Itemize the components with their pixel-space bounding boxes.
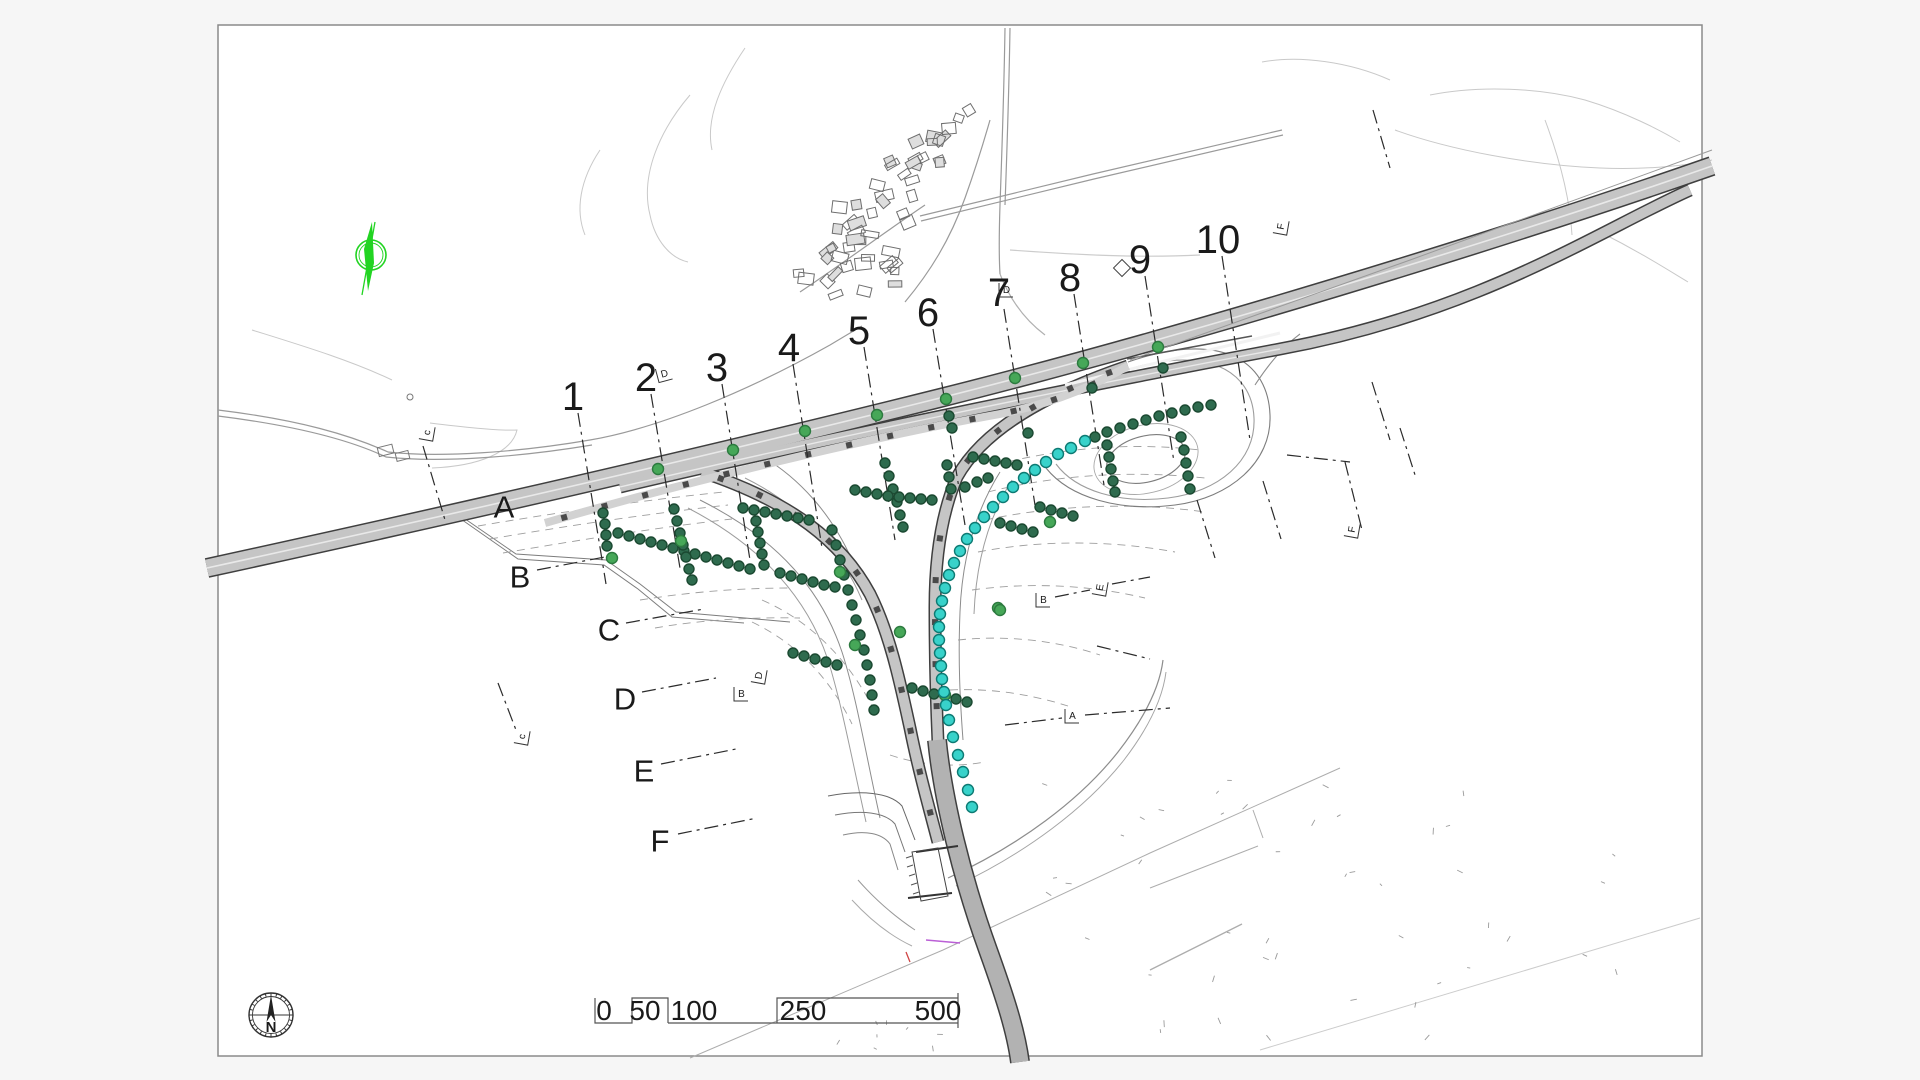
- tree-point-dark: [1181, 458, 1191, 468]
- tree-point-dark: [1128, 419, 1138, 429]
- tree-point-dark: [944, 472, 954, 482]
- scale-label-100: 100: [671, 995, 718, 1026]
- tree-point-dark: [947, 423, 957, 433]
- tree-point-dark: [1057, 508, 1067, 518]
- village-building: [846, 233, 865, 246]
- tree-point-green: [728, 445, 739, 456]
- tree-point-dark: [1115, 423, 1125, 433]
- tree-point-dark: [757, 549, 767, 559]
- tree-point-green: [653, 464, 664, 475]
- tree-point-dark: [797, 574, 807, 584]
- tree-point-dark: [749, 505, 759, 515]
- tree-point-green: [1045, 517, 1056, 528]
- scale-label-0: 0: [596, 995, 612, 1026]
- station-tick: [933, 577, 939, 583]
- tree-point-dark: [1141, 415, 1151, 425]
- tree-point-cyan: [970, 523, 981, 534]
- tree-point-dark: [995, 518, 1005, 528]
- tree-point-dark: [600, 519, 610, 529]
- tree-point-dark: [1206, 400, 1216, 410]
- tree-point-cyan: [948, 732, 959, 743]
- tree-point-dark: [1104, 452, 1114, 462]
- station-tick: [887, 432, 894, 439]
- tree-point-green: [941, 394, 952, 405]
- tree-point-dark: [951, 694, 961, 704]
- tree-point-dark: [1046, 505, 1056, 515]
- tree-point-cyan: [939, 687, 950, 698]
- grid-column-label: 4: [778, 326, 800, 370]
- tree-point-dark: [1183, 471, 1193, 481]
- tree-point-dark: [1185, 484, 1195, 494]
- north-compass-icon: N: [249, 993, 293, 1037]
- tree-point-dark: [1068, 511, 1078, 521]
- tree-point-dark: [751, 516, 761, 526]
- tree-point-cyan: [963, 785, 974, 796]
- grid-column-label: 5: [848, 309, 870, 353]
- tree-point-dark: [672, 516, 682, 526]
- tree-point-dark: [905, 493, 915, 503]
- tree-point-dark: [972, 477, 982, 487]
- tree-point-dark: [850, 485, 860, 495]
- tree-point-dark: [775, 568, 785, 578]
- tree-point-dark: [635, 534, 645, 544]
- tree-point-dark: [745, 564, 755, 574]
- tree-point-green: [607, 553, 618, 564]
- tree-point-cyan: [998, 492, 1009, 503]
- grid-column-label: 1: [562, 375, 584, 419]
- tree-point-dark: [983, 473, 993, 483]
- tree-point-dark: [821, 657, 831, 667]
- tree-point-dark: [1158, 363, 1168, 373]
- tree-point-dark: [771, 509, 781, 519]
- sheet-border: [218, 25, 1702, 1056]
- tree-point-dark: [624, 531, 634, 541]
- tree-point-green: [835, 567, 846, 578]
- tree-point-dark: [872, 489, 882, 499]
- tree-point-cyan: [1030, 465, 1041, 476]
- tree-point-cyan: [958, 767, 969, 778]
- tree-point-dark: [646, 537, 656, 547]
- tree-point-cyan: [936, 661, 947, 672]
- tree-point-dark: [880, 458, 890, 468]
- grid-row-label: F: [651, 824, 670, 859]
- tree-point-dark: [601, 530, 611, 540]
- tree-point-green: [872, 410, 883, 421]
- tree-point-cyan: [935, 648, 946, 659]
- section-flag-label: D: [1003, 285, 1010, 296]
- tree-point-dark: [851, 615, 861, 625]
- tree-point-dark: [613, 528, 623, 538]
- scale-label-50: 50: [629, 995, 660, 1026]
- tree-point-cyan: [962, 534, 973, 545]
- grid-row-label: A: [494, 490, 515, 525]
- tree-point-dark: [1087, 383, 1097, 393]
- tree-point-dark: [760, 507, 770, 517]
- tree-point-dark: [867, 690, 877, 700]
- tree-point-cyan: [1008, 482, 1019, 493]
- tree-point-cyan: [1019, 473, 1030, 484]
- tree-point-dark: [687, 575, 697, 585]
- tree-point-dark: [832, 660, 842, 670]
- tree-point-dark: [944, 411, 954, 421]
- grid-column-label: 8: [1059, 256, 1081, 300]
- tree-point-dark: [657, 540, 667, 550]
- tree-point-dark: [898, 522, 908, 532]
- tree-point-dark: [1028, 527, 1038, 537]
- tree-point-dark: [1154, 411, 1164, 421]
- tree-point-cyan: [1066, 443, 1077, 454]
- tree-point-dark: [1108, 476, 1118, 486]
- tree-point-dark: [862, 660, 872, 670]
- village-building: [888, 281, 902, 287]
- tree-point-cyan: [1080, 436, 1091, 447]
- tree-point-dark: [1001, 458, 1011, 468]
- tree-point-dark: [786, 571, 796, 581]
- grid-row-label: C: [598, 613, 620, 648]
- tree-point-dark: [1012, 460, 1022, 470]
- tree-point-dark: [782, 511, 792, 521]
- tree-point-dark: [990, 456, 1000, 466]
- tree-point-cyan: [944, 570, 955, 581]
- tree-point-dark: [684, 564, 694, 574]
- tree-point-dark: [865, 675, 875, 685]
- scale-label-500: 500: [915, 995, 962, 1026]
- tree-point-cyan: [979, 512, 990, 523]
- station-tick: [969, 416, 976, 423]
- tree-point-dark: [942, 460, 952, 470]
- tree-point-dark: [793, 513, 803, 523]
- tree-point-dark: [738, 503, 748, 513]
- tree-point-dark: [929, 689, 939, 699]
- tree-point-cyan: [988, 502, 999, 513]
- site-plan-page: 12345678910ABCDEF DccDBBEFAFD N 0 50 100…: [0, 0, 1920, 1080]
- tree-point-dark: [884, 471, 894, 481]
- tree-point-dark: [861, 487, 871, 497]
- compass-north-label: N: [266, 1019, 277, 1036]
- tree-point-dark: [810, 654, 820, 664]
- tree-point-dark: [946, 484, 956, 494]
- village-building: [935, 157, 944, 167]
- tree-point-dark: [755, 538, 765, 548]
- site-plan-drawing: 12345678910ABCDEF DccDBBEFAFD N 0 50 100…: [0, 0, 1920, 1080]
- tree-point-dark: [701, 552, 711, 562]
- tree-point-dark: [830, 582, 840, 592]
- section-flag-label: B: [1040, 595, 1047, 606]
- tree-point-dark: [960, 482, 970, 492]
- village-building: [851, 199, 862, 210]
- tree-point-dark: [723, 558, 733, 568]
- tree-point-cyan: [934, 622, 945, 633]
- tree-point-dark: [894, 492, 904, 502]
- tree-point-cyan: [941, 700, 952, 711]
- tree-point-dark: [804, 515, 814, 525]
- tree-point-cyan: [949, 558, 960, 569]
- tree-point-dark: [968, 452, 978, 462]
- tree-point-dark: [907, 683, 917, 693]
- tree-point-dark: [895, 510, 905, 520]
- tree-point-dark: [1180, 405, 1190, 415]
- scale-label-250: 250: [780, 995, 827, 1026]
- tree-point-green: [995, 605, 1006, 616]
- tree-point-green: [850, 640, 861, 651]
- tree-point-dark: [831, 540, 841, 550]
- tree-point-dark: [1023, 428, 1033, 438]
- tree-point-cyan: [1053, 449, 1064, 460]
- tree-point-dark: [819, 580, 829, 590]
- tree-point-dark: [759, 560, 769, 570]
- section-flag-label: B: [738, 689, 745, 700]
- tree-point-green: [1010, 373, 1021, 384]
- tree-point-dark: [855, 630, 865, 640]
- tree-point-dark: [1167, 408, 1177, 418]
- grid-column-label: 3: [706, 346, 728, 390]
- tree-point-dark: [847, 600, 857, 610]
- tree-point-dark: [1006, 521, 1016, 531]
- tree-point-dark: [918, 686, 928, 696]
- tree-point-dark: [598, 508, 608, 518]
- tree-point-dark: [1090, 432, 1100, 442]
- elevation-mark: [1066, 883, 1072, 884]
- grid-row-label: B: [510, 560, 531, 595]
- tree-point-dark: [1106, 464, 1116, 474]
- tree-point-dark: [1035, 502, 1045, 512]
- tree-point-cyan: [955, 546, 966, 557]
- section-flag-label: A: [1069, 711, 1076, 722]
- tree-point-dark: [1102, 440, 1112, 450]
- tree-point-green: [1153, 342, 1164, 353]
- tree-point-dark: [1110, 487, 1120, 497]
- tree-point-dark: [843, 585, 853, 595]
- tree-point-dark: [788, 648, 798, 658]
- tree-point-dark: [734, 561, 744, 571]
- tree-point-dark: [1176, 432, 1186, 442]
- tree-point-dark: [979, 454, 989, 464]
- station-tick: [928, 424, 935, 431]
- station-tick: [907, 727, 914, 734]
- grid-column-label: 6: [917, 291, 939, 335]
- village-building: [832, 223, 843, 234]
- tree-point-dark: [962, 697, 972, 707]
- grid-column-label: 10: [1196, 218, 1241, 262]
- tree-point-dark: [753, 527, 763, 537]
- tree-point-dark: [799, 651, 809, 661]
- grid-row-label: E: [634, 754, 655, 789]
- tree-point-dark: [927, 495, 937, 505]
- tree-point-green: [895, 627, 906, 638]
- tree-point-dark: [869, 705, 879, 715]
- tree-point-green: [1078, 358, 1089, 369]
- tree-point-dark: [916, 494, 926, 504]
- tree-point-cyan: [953, 750, 964, 761]
- tree-point-dark: [1179, 445, 1189, 455]
- station-tick: [936, 535, 943, 542]
- tree-point-cyan: [1041, 457, 1052, 468]
- tree-point-dark: [1102, 427, 1112, 437]
- tree-point-dark: [835, 555, 845, 565]
- grid-row-label: D: [614, 682, 636, 717]
- tree-point-cyan: [967, 802, 978, 813]
- tree-point-cyan: [940, 583, 951, 594]
- tree-point-dark: [669, 504, 679, 514]
- tree-point-dark: [681, 552, 691, 562]
- station-tick: [934, 703, 940, 709]
- grid-column-label: 9: [1129, 238, 1151, 282]
- tree-point-dark: [1017, 524, 1027, 534]
- tree-point-green: [676, 536, 687, 547]
- tree-point-dark: [1193, 402, 1203, 412]
- tree-point-dark: [712, 555, 722, 565]
- station-tick: [846, 441, 853, 448]
- tree-point-cyan: [944, 715, 955, 726]
- tree-point-dark: [883, 491, 893, 501]
- tree-point-cyan: [937, 674, 948, 685]
- tree-point-cyan: [937, 596, 948, 607]
- tree-point-cyan: [934, 635, 945, 646]
- grid-column-label: 2: [635, 356, 657, 400]
- tree-point-cyan: [935, 609, 946, 620]
- tree-point-green: [800, 426, 811, 437]
- tree-point-dark: [808, 577, 818, 587]
- tree-point-dark: [827, 525, 837, 535]
- tree-point-dark: [602, 541, 612, 551]
- elevation-mark: [1053, 878, 1057, 879]
